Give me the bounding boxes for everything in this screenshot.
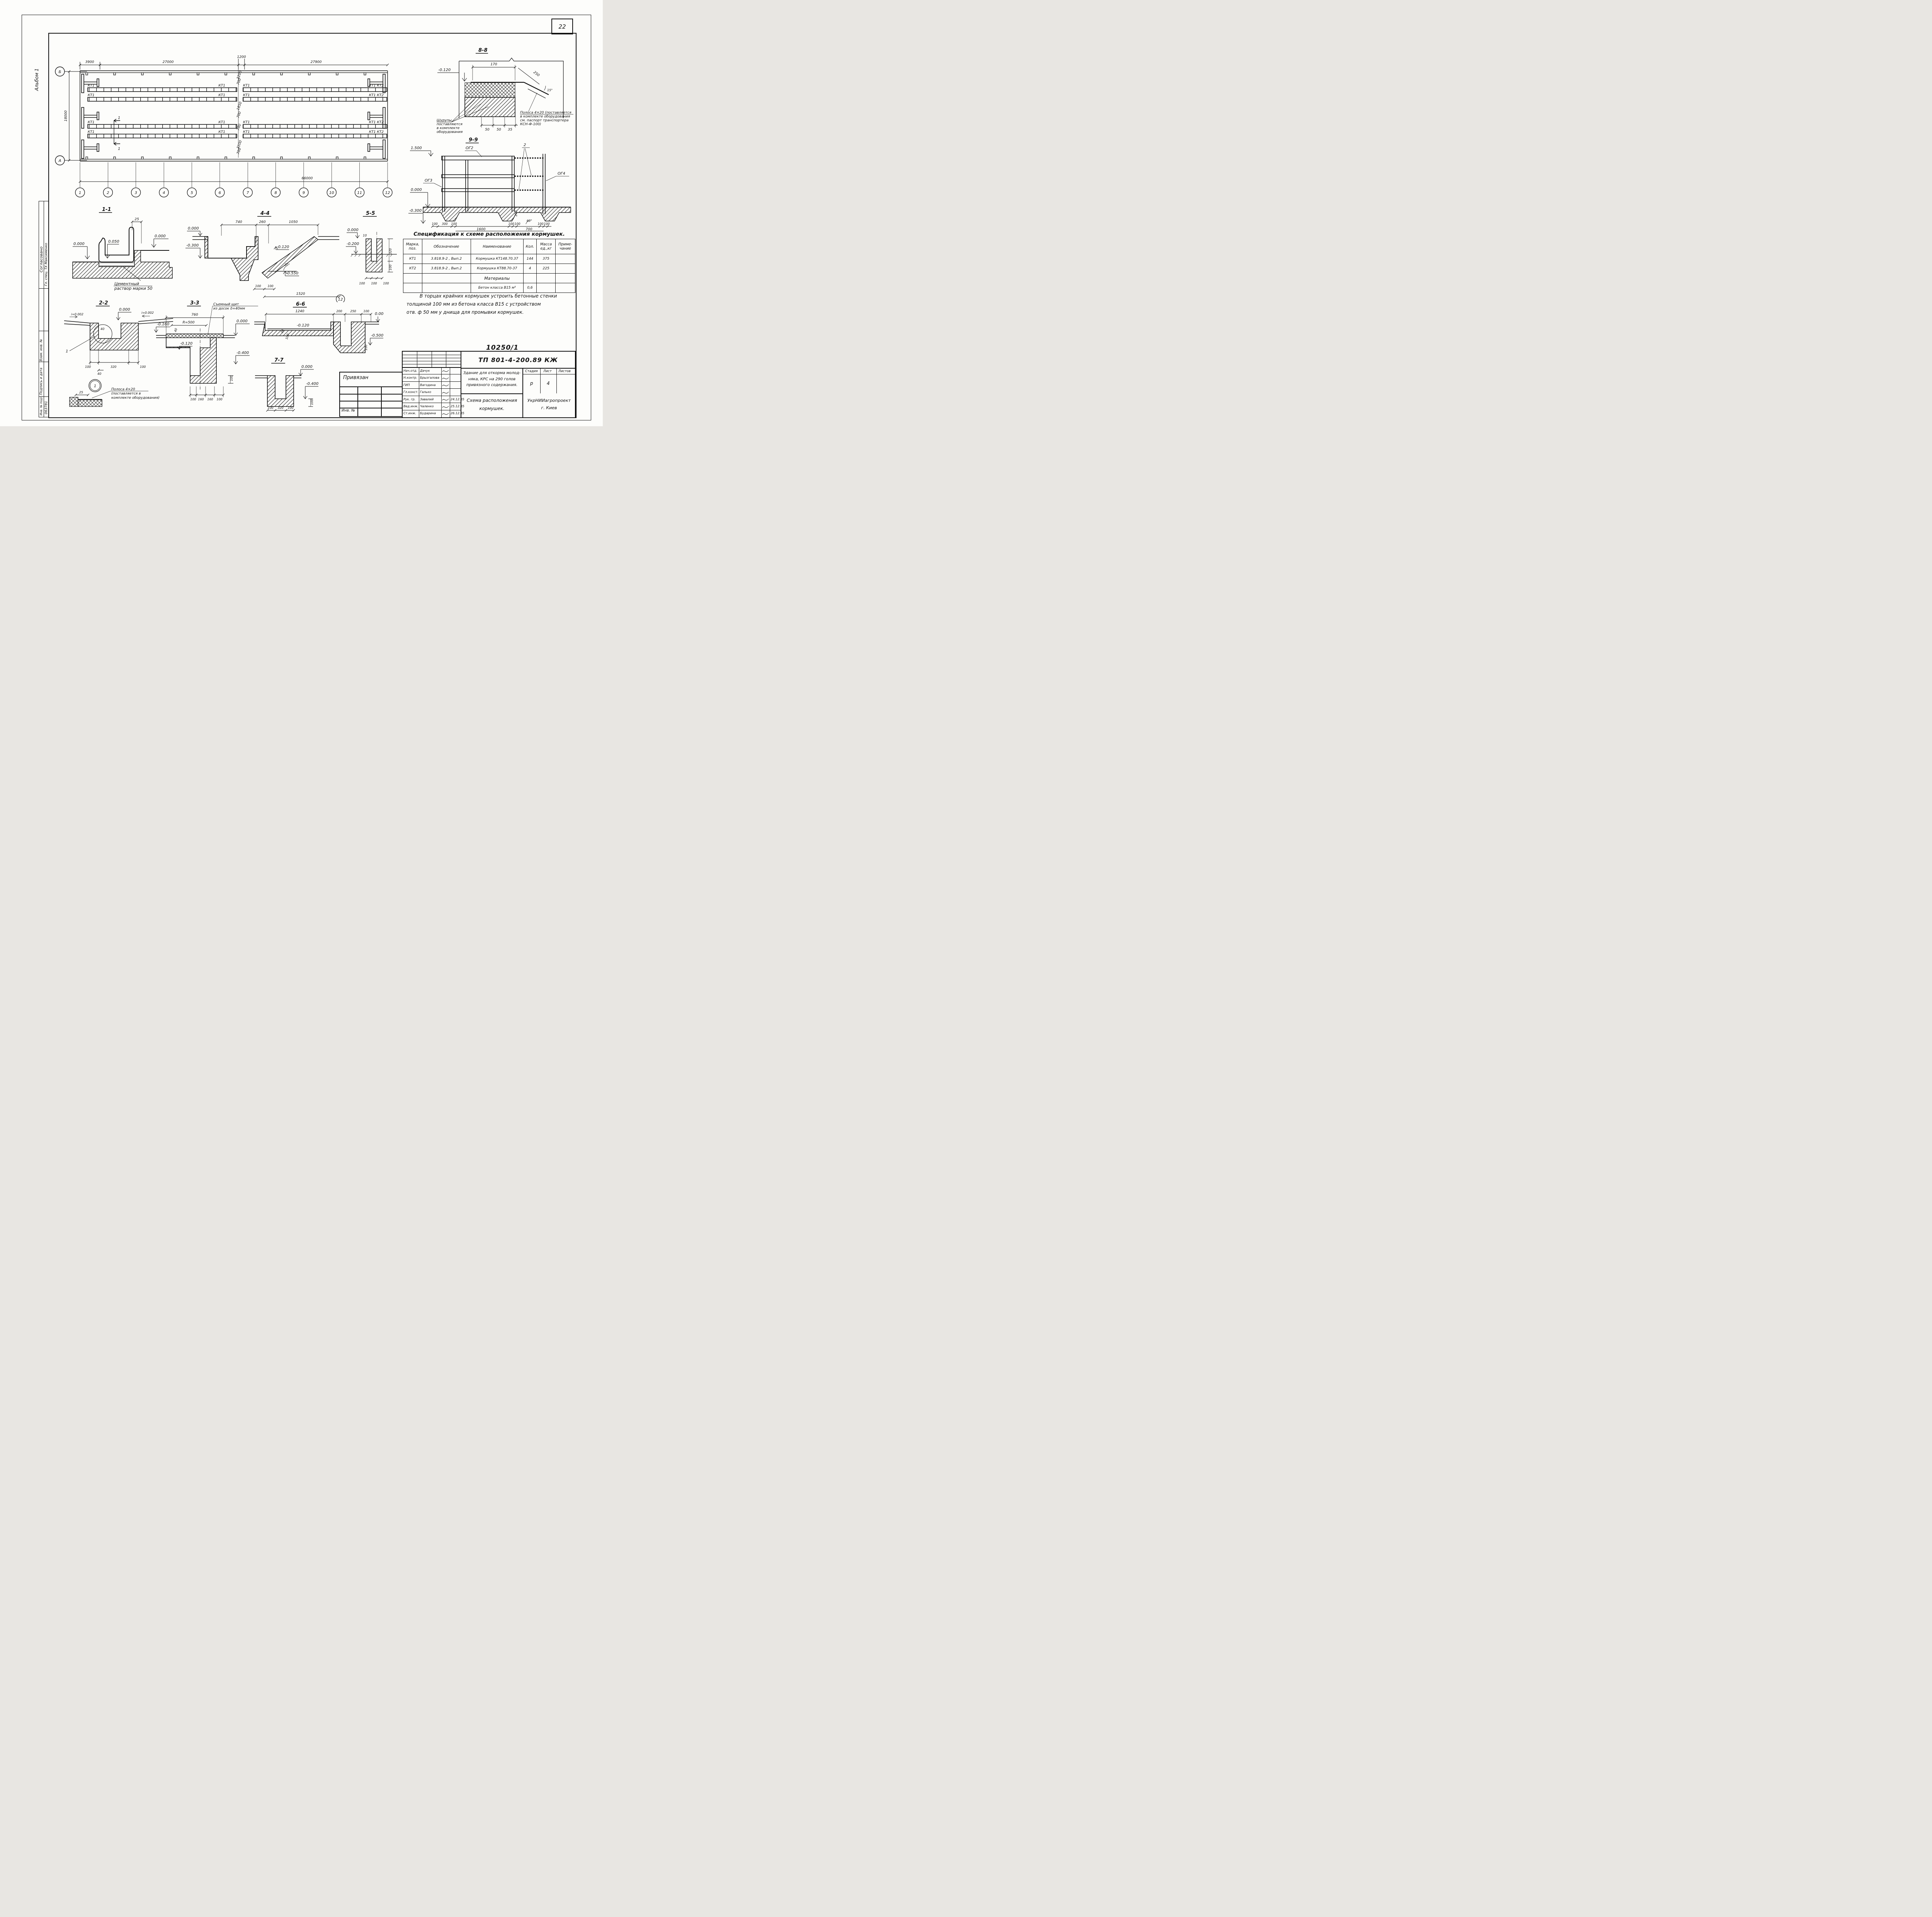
stamp-inv-number: 063781 (44, 401, 48, 414)
section-6-6: 6-6 1240 200 250 100 0.000 -0.120 40 100… (250, 299, 384, 356)
cut-mark-1: 1 1 (114, 116, 120, 151)
stamp-inv-podl: Инв. № подл. (39, 395, 43, 415)
svg-text:50: 50 (497, 128, 501, 132)
svg-text:1050: 1050 (289, 220, 298, 224)
stamp-divider (44, 201, 44, 417)
svg-text:4: 4 (163, 191, 165, 195)
svg-text:100: 100 (85, 365, 91, 369)
svg-text:35: 35 (508, 128, 512, 132)
axis-a: А (58, 159, 61, 163)
dim-27000: 27000 (163, 60, 174, 64)
spec-materials-row: Материалы (403, 274, 575, 283)
note-polosa-2: Полоса 4×20 (поставляется в комплекте об… (92, 388, 160, 400)
svg-text:1-1: 1-1 (102, 207, 111, 213)
dim-66000: 66000 (302, 177, 313, 180)
svg-text:100: 100 (364, 345, 368, 350)
svg-text:Шурупы: Шурупы (437, 119, 452, 122)
svg-text:Съемный щит: Съемный щит (213, 303, 239, 306)
svg-text:0.050: 0.050 (108, 240, 119, 244)
svg-text:30°: 30° (284, 263, 290, 267)
svg-text:0.000: 0.000 (375, 312, 384, 316)
svg-text:КТ1 КТ2: КТ1 КТ2 (369, 121, 384, 124)
svg-text:1: 1 (118, 116, 120, 120)
stamp-vzam: Взам. инв. № (39, 339, 43, 361)
svg-text:1: 1 (94, 384, 96, 388)
svg-text:50: 50 (485, 128, 490, 132)
svg-text:КСН-Ф-100): КСН-Ф-100) (520, 122, 541, 126)
svg-text:9-9: 9-9 (469, 137, 478, 143)
svg-text:0.000: 0.000 (301, 365, 313, 369)
elev-0120: -0.120 (438, 68, 451, 72)
spec-row: КТ23.818.9-2 , Вып.2 Кормушка КТ88.70-37… (403, 264, 575, 274)
svg-text:200: 200 (336, 310, 342, 313)
svg-text:-0.400: -0.400 (236, 351, 249, 355)
drawing-sheet: 22 Альбом 1 Согласовано Гл. спец. ТХ Мак… (0, 0, 603, 426)
title-block: Нач.отд. Дачук Н.контр. Брызгалова ГИП В… (402, 351, 576, 418)
svg-text:100: 100 (287, 406, 293, 410)
svg-text:100: 100 (267, 284, 273, 288)
spec-row: КТ13.818.9-2 , Вып.2 Кормушка КТ148.70.3… (403, 254, 575, 264)
svg-text:7-7: 7-7 (274, 357, 284, 363)
svg-text:6: 6 (219, 191, 221, 195)
svg-text:740: 740 (235, 220, 242, 224)
svg-text:2: 2 (524, 143, 526, 147)
svg-text:КТ1 КТ2: КТ1 КТ2 (369, 130, 384, 134)
svg-text:60°: 60° (527, 219, 532, 223)
svg-text:6-6: 6-6 (296, 301, 305, 307)
svg-text:1: 1 (79, 191, 81, 195)
svg-text:0.000: 0.000 (119, 308, 130, 312)
svg-text:100: 100 (359, 282, 365, 285)
svg-text:100: 100 (255, 284, 261, 288)
svg-text:300: 300 (442, 222, 447, 226)
svg-text:4-4: 4-4 (260, 211, 270, 216)
svg-text:3-3: 3-3 (190, 300, 199, 306)
spec-title: Спецификация к схеме расположения кормуш… (403, 231, 575, 237)
svg-text:10: 10 (363, 234, 367, 237)
dim-1200: 1200 (237, 55, 246, 59)
svg-text:1: 1 (66, 349, 68, 354)
svg-text:-0.200: -0.200 (347, 242, 359, 246)
svg-text:0.000: 0.000 (236, 319, 248, 323)
svg-text:оборудования: оборудования (437, 130, 463, 134)
svg-text:8-8: 8-8 (478, 48, 488, 53)
svg-text:i=0.002: i=0.002 (71, 313, 83, 316)
svg-text:100: 100 (363, 310, 369, 313)
dim-3900: 3900 (85, 60, 94, 64)
svg-text:-0.120: -0.120 (297, 323, 309, 328)
svg-text:0.000: 0.000 (347, 228, 359, 232)
svg-text:100: 100 (267, 406, 273, 410)
svg-text:0.000: 0.000 (73, 242, 85, 246)
svg-text:КТ1: КТ1 (243, 130, 250, 134)
stamp-podpis: Подпись и дата (39, 368, 43, 395)
svg-text:250: 250 (532, 70, 540, 77)
axis-b: Б (59, 70, 61, 74)
svg-text:КТ1 КТ2: КТ1 КТ2 (369, 94, 384, 97)
svg-text:КТ1: КТ1 (218, 121, 225, 124)
svg-text:1240: 1240 (296, 310, 304, 313)
svg-text:-0.300: -0.300 (409, 209, 422, 213)
svg-text:100: 100 (216, 398, 222, 401)
svg-text:Полоса 4×20 (поставляется: Полоса 4×20 (поставляется (520, 111, 571, 115)
sig-name: Дачук (420, 369, 430, 373)
svg-text:760: 760 (191, 313, 198, 317)
svg-text:из досок δ=40мм: из досок δ=40мм (213, 307, 245, 311)
svg-text:i=0.002: i=0.002 (141, 311, 154, 315)
stage-header: Стадия (525, 369, 538, 373)
stamp-agreed-by: Гл. спец. ТХ Максименко (44, 243, 48, 286)
svg-text:(поставляется в: (поставляется в (111, 392, 141, 396)
svg-text:3: 3 (135, 191, 137, 195)
spec-table: Марка, поз. Обозначение Наименование Кол… (403, 239, 575, 293)
sheet-header: Лист (543, 369, 552, 373)
stamp-agreed: Согласовано (39, 247, 44, 272)
svg-text:320: 320 (277, 406, 283, 410)
svg-text:8: 8 (274, 191, 277, 195)
svg-text:100: 100 (508, 222, 514, 226)
end-columns (82, 74, 385, 158)
svg-text:100: 100 (389, 264, 392, 270)
svg-text:ОГ2: ОГ2 (466, 146, 473, 150)
page-number-box: 22 (551, 19, 573, 34)
svg-text:Полоса 4×20: Полоса 4×20 (111, 388, 135, 391)
detail-8-8: 8-8 -0.120 170 250 15° 50 50 35 (436, 46, 574, 138)
svg-text:25: 25 (79, 391, 83, 394)
svg-text:КТ1: КТ1 (88, 94, 95, 97)
general-note: В торцах крайних кормушек устроить бетон… (406, 292, 573, 316)
svg-text:КТ1: КТ1 (88, 130, 95, 134)
svg-text:9: 9 (303, 191, 305, 195)
svg-text:170: 170 (490, 63, 497, 66)
svg-text:-0.500: -0.500 (371, 333, 383, 338)
svg-text:200: 200 (514, 211, 518, 216)
attach-title: Привязан (343, 375, 368, 381)
svg-text:0.000: 0.000 (155, 234, 166, 238)
svg-text:5: 5 (190, 191, 193, 195)
svg-text:КТ1: КТ1 (88, 121, 95, 124)
svg-text:0.000: 0.000 (411, 188, 422, 192)
plan-view: 3900 27000 1200 27900 Б А 18000 (52, 54, 396, 205)
svg-text:-0.120: -0.120 (180, 342, 192, 346)
svg-text:100: 100 (140, 365, 146, 369)
svg-text:-0.400: -0.400 (306, 382, 318, 386)
svg-text:40: 40 (100, 327, 104, 331)
svg-text:0.000: 0.000 (188, 226, 199, 231)
svg-text:раствор марки 50: раствор марки 50 (114, 286, 153, 291)
svg-text:40: 40 (97, 372, 101, 376)
sheet-value: 4 (547, 381, 550, 386)
svg-text:R=500: R=500 (183, 321, 195, 325)
section-1-1: 1-1 25 0.000 0.050 0.000 Цементный раств… (65, 205, 181, 292)
svg-text:комплекте оборудования): комплекте оборудования) (111, 396, 160, 400)
section-7-7: 7-7 0.000 -0.400 100 100 320 100 (252, 356, 339, 414)
svg-text:320: 320 (389, 248, 392, 254)
album-label: Альбом 1 (34, 68, 39, 91)
svg-text:2-2: 2-2 (99, 300, 108, 306)
svg-text:2: 2 (107, 191, 109, 195)
svg-text:ОГ3: ОГ3 (425, 179, 432, 183)
organization: УкрНИИагропроектг. Киев (523, 394, 575, 420)
column-stubs (86, 73, 366, 159)
attach-inv-label: Инв. № (342, 408, 355, 413)
svg-text:КТ1: КТ1 (218, 130, 225, 134)
drawing-name: Схема расположениякормушек. (461, 394, 522, 419)
svg-text:КТ1: КТ1 (218, 84, 225, 88)
svg-text:250: 250 (350, 310, 356, 313)
sig-role: Нач.отд. (403, 369, 417, 373)
svg-text:КТ1: КТ1 (243, 84, 250, 88)
svg-text:10: 10 (329, 191, 334, 195)
svg-text:Цементный: Цементный (114, 282, 139, 286)
svg-text:100: 100 (451, 222, 457, 226)
svg-text:260: 260 (259, 220, 265, 224)
svg-text:-0.550: -0.550 (286, 271, 298, 276)
doc-number: 10250/1 (486, 344, 519, 352)
svg-text:-0.120: -0.120 (277, 245, 289, 249)
section-5-5: 5-5 0.000 -0.200 10 320 100 100 100 100 (346, 209, 400, 292)
svg-text:160: 160 (198, 398, 204, 401)
svg-text:100: 100 (432, 222, 437, 226)
svg-text:в комплекте оборудования: в комплекте оборудования (520, 115, 570, 119)
kt1-label: КТ1 (88, 84, 95, 88)
svg-text:100: 100 (383, 282, 389, 285)
grid-bubbles: 1 2 3 4 5 6 7 8 9 10 11 12 (75, 188, 392, 197)
attach-stamp: Привязан Инв. № (339, 372, 410, 417)
svg-text:100: 100 (537, 222, 543, 226)
dim-18000: 18000 (64, 110, 68, 121)
svg-text:100: 100 (230, 375, 233, 381)
section-3-3: 3-3 Съемный щит из досок δ=40мм 760 R=50… (155, 298, 267, 410)
svg-text:поставляются: поставляются (437, 122, 463, 126)
svg-text:700: 700 (236, 111, 242, 119)
project-name: Здание для откорма молод-няка, КРС на 29… (461, 369, 522, 394)
svg-text:100: 100 (310, 399, 314, 405)
detail-9-9: 9-9 1.500 0.000 -0.300 ОГ2 2 ОГ3 ОГ4 (408, 136, 574, 232)
svg-text:100: 100 (371, 282, 377, 285)
stage-value: р (530, 381, 533, 386)
svg-text:ОГ4: ОГ4 (558, 172, 565, 176)
page-number: 22 (558, 23, 566, 30)
sheets-header: Листов (558, 369, 571, 373)
svg-text:КТ1: КТ1 (243, 121, 250, 124)
svg-text:100: 100 (190, 398, 196, 401)
svg-text:25: 25 (134, 218, 139, 221)
svg-text:100: 100 (544, 222, 549, 226)
svg-text:11: 11 (357, 191, 362, 195)
svg-text:1520: 1520 (296, 292, 305, 296)
svg-text:160: 160 (207, 398, 213, 401)
svg-text:100: 100 (514, 222, 520, 226)
svg-text:-0.300: -0.300 (186, 243, 199, 248)
svg-text:7: 7 (247, 191, 249, 195)
svg-text:КТ1: КТ1 (243, 94, 250, 97)
kt1kt2-label: КТ1 КТ2 (369, 84, 384, 88)
svg-text:КТ1: КТ1 (218, 94, 225, 97)
svg-text:12: 12 (385, 191, 390, 195)
svg-text:см. паспорт транспортера: см. паспорт транспортера (520, 119, 568, 122)
svg-text:в комплекте: в комплекте (437, 126, 460, 130)
note-polosa: Полоса 4×20 (поставляется в комплекте об… (520, 93, 573, 126)
svg-text:40: 40 (173, 328, 178, 332)
spec-material-row: Бетон класса В15 м³ 0,6 (403, 283, 575, 293)
svg-text:5-5: 5-5 (366, 211, 375, 216)
svg-text:1.500: 1.500 (411, 146, 422, 150)
section-4-4: 4-4 740 260 1050 0.000 -0.300 -0.120 -0.… (185, 209, 347, 302)
dim-27900: 27900 (311, 60, 322, 64)
spec-table-block: Спецификация к схеме расположения кормуш… (403, 231, 575, 293)
svg-text:1: 1 (118, 147, 120, 151)
svg-text:320: 320 (111, 365, 116, 369)
doc-designation: ТП 801-4-200.89 КЖ (461, 352, 575, 368)
svg-text:15°: 15° (547, 88, 553, 92)
svg-text:1850: 1850 (236, 101, 243, 111)
signatures (442, 369, 449, 417)
